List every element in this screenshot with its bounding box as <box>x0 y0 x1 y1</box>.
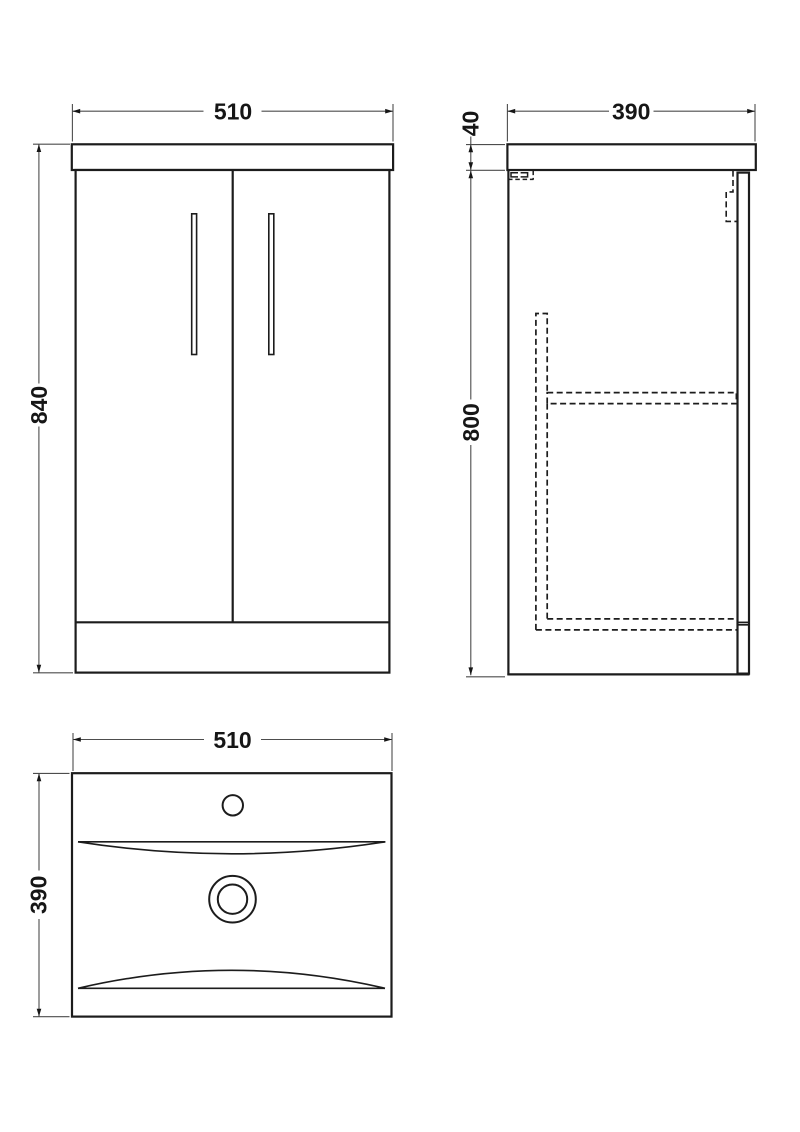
svg-text:840: 840 <box>26 386 52 424</box>
svg-text:800: 800 <box>458 403 484 441</box>
svg-text:390: 390 <box>612 99 650 125</box>
svg-text:510: 510 <box>214 99 252 125</box>
svg-text:40: 40 <box>458 111 484 137</box>
svg-text:390: 390 <box>26 876 52 914</box>
svg-text:510: 510 <box>213 727 251 753</box>
